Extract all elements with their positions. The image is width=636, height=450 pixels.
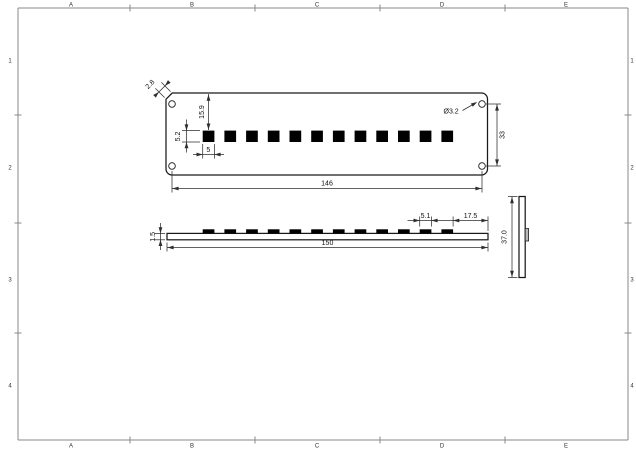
- dim-text-tab-edge-offset: 17.5: [464, 213, 478, 220]
- hole-top-right: [479, 101, 486, 108]
- grid-label: B: [190, 3, 194, 9]
- dim-text-hole-pitch-horizontal: 146: [321, 181, 333, 188]
- grid-label: C: [315, 444, 320, 450]
- dim-text-slot-height: 5.2: [175, 132, 182, 142]
- dim-thickness: 1.5: [150, 223, 165, 250]
- tab: [246, 229, 258, 233]
- slot: [441, 131, 453, 142]
- slot: [290, 131, 302, 142]
- slot: [333, 131, 345, 142]
- dim-text-hole-pitch-vertical: 33: [500, 131, 507, 139]
- dim-text-hole-diameter: Ø3.2: [444, 109, 459, 116]
- grid-label: 4: [630, 384, 634, 390]
- grid-label: 4: [8, 384, 12, 390]
- end-strip-outline: [519, 197, 525, 278]
- tab: [355, 229, 367, 233]
- tab: [376, 229, 388, 233]
- dim-text-length: 150: [322, 240, 334, 247]
- grid-label: B: [190, 444, 194, 450]
- dim-text-chamfer: 2.8: [145, 79, 157, 91]
- slot: [203, 131, 215, 142]
- grid-label: 1: [8, 59, 12, 65]
- grid-label: D: [440, 3, 445, 9]
- tab: [224, 229, 236, 233]
- frame-row-labels-left: 1 2 3 4: [8, 59, 12, 390]
- tab: [420, 229, 432, 233]
- tab: [525, 229, 528, 242]
- dim-text-thickness: 1.5: [150, 232, 157, 242]
- grid-label: D: [440, 444, 445, 450]
- grid-label: 1: [630, 59, 634, 65]
- grid-label: E: [564, 3, 568, 9]
- tab: [311, 229, 323, 233]
- tab: [441, 229, 453, 233]
- slot: [311, 131, 323, 142]
- tab: [398, 229, 410, 233]
- slot: [420, 131, 432, 142]
- dim-height: 37.0: [502, 197, 518, 278]
- grid-label: A: [69, 3, 73, 9]
- tab: [268, 229, 280, 233]
- front-view: 1.5 150 5.1 17.5: [150, 213, 488, 252]
- cad-drawing-sheet: A B C D E A B C D E 1 2 3 4 1 2 3 4: [0, 0, 636, 450]
- grid-label: 2: [8, 166, 12, 172]
- dim-tab-width: 5.1: [408, 213, 444, 227]
- dim-text-tab-width: 5.1: [421, 213, 431, 220]
- frame-row-labels-right: 1 2 3 4: [630, 59, 634, 390]
- frame-zone-ticks: [15, 5, 632, 444]
- dim-text-slot-offset: 15.9: [199, 105, 206, 119]
- tab: [333, 229, 345, 233]
- slot: [246, 131, 258, 142]
- dim-tab-edge-offset: 17.5: [443, 213, 488, 231]
- grid-label: 3: [8, 278, 12, 284]
- hole-bottom-right: [479, 163, 486, 170]
- slot: [376, 131, 388, 142]
- dim-length: 150: [167, 240, 488, 252]
- grid-label: 3: [630, 278, 634, 284]
- slot: [268, 131, 280, 142]
- tab: [203, 229, 215, 233]
- hole-bottom-left: [169, 163, 176, 170]
- grid-label: A: [69, 444, 73, 450]
- grid-label: 2: [630, 166, 634, 172]
- dim-text-slot-width: 5: [206, 147, 210, 154]
- tab: [290, 229, 302, 233]
- frame-column-labels-bottom: A B C D E: [69, 444, 568, 450]
- grid-label: E: [564, 444, 568, 450]
- drawing-canvas: A B C D E A B C D E 1 2 3 4 1 2 3 4: [0, 0, 636, 450]
- end-tab: [525, 229, 528, 242]
- dim-chamfer: 2.8: [145, 79, 171, 98]
- sheet-frame: A B C D E A B C D E 1 2 3 4 1 2 3 4: [8, 3, 634, 450]
- top-view: 2.8 15.9 5.2 5 Ø3.2: [145, 79, 507, 193]
- end-view: 37.0: [502, 197, 529, 278]
- dim-text-height: 37.0: [502, 230, 509, 244]
- hole-top-left: [169, 101, 176, 108]
- slot: [224, 131, 236, 142]
- slot: [398, 131, 410, 142]
- grid-label: C: [315, 3, 320, 9]
- slot: [355, 131, 367, 142]
- dim-hole-pitch-vertical: 33: [486, 104, 507, 166]
